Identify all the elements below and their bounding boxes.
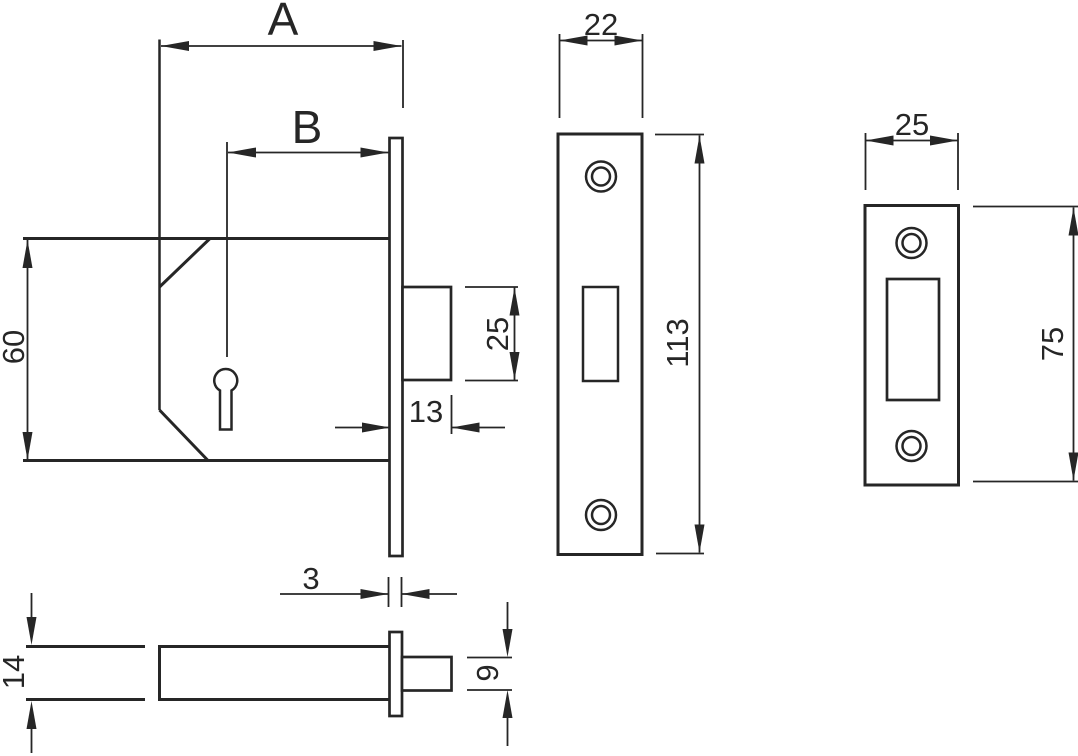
dimension-case-depth-A: A xyxy=(161,0,403,108)
arrowhead-left xyxy=(228,148,256,158)
arrowhead-left xyxy=(402,589,430,599)
arrowhead-up xyxy=(510,288,520,316)
dim-label-faceplate-thickness: 3 xyxy=(302,561,319,596)
arrowhead-left xyxy=(452,423,480,433)
dimension-backset-B: B xyxy=(227,101,389,357)
dim-label-faceplate-height: 113 xyxy=(660,318,695,367)
dimension-faceplate-thickness-3: 3 xyxy=(280,561,457,607)
dimension-strike-height-75: 75 xyxy=(973,207,1078,482)
arrowhead-left xyxy=(161,41,189,51)
arrowhead-down xyxy=(1069,453,1078,481)
side-view: A B 60 25 13 xyxy=(0,0,520,607)
arrowhead-right xyxy=(362,423,390,433)
dim-label-faceplate-width: 22 xyxy=(584,7,618,42)
faceplate-bolt-slot xyxy=(583,287,618,381)
strike-screw-hole-bottom xyxy=(897,431,927,461)
arrowhead-down xyxy=(695,525,705,553)
dimension-bolt-throw-13: 13 xyxy=(335,394,505,434)
keyhole xyxy=(214,369,237,429)
arrowhead-down xyxy=(510,352,520,380)
plan-view: 14 9 xyxy=(0,593,513,753)
dimension-case-thickness-14: 14 xyxy=(0,593,37,753)
arrowhead-right xyxy=(930,136,958,146)
arrowhead-right xyxy=(615,36,643,46)
strike-screw-hole-top xyxy=(897,228,927,258)
dim-label-case-thickness: 14 xyxy=(0,655,31,689)
arrowhead-up xyxy=(1069,208,1078,236)
faceplate-side xyxy=(390,138,403,556)
arrowhead-right xyxy=(361,148,389,158)
dimension-faceplate-height-113: 113 xyxy=(655,135,705,554)
arrowhead-down xyxy=(503,629,513,657)
arrowhead-right xyxy=(374,41,402,51)
strike-plate-view: 25 75 xyxy=(865,107,1078,485)
strike-plate-opening xyxy=(887,279,939,400)
dimension-case-height-60: 60 xyxy=(0,240,33,460)
dim-label-bolt-width: 9 xyxy=(470,664,505,681)
arrowhead-up xyxy=(23,240,33,268)
dimension-strike-width-25: 25 xyxy=(866,107,959,190)
faceplate-front-view: 22 113 xyxy=(558,7,705,555)
arrowhead-up xyxy=(27,701,37,729)
faceplate-screw-hole-bottom xyxy=(586,500,616,530)
arrowhead-right xyxy=(361,589,389,599)
mortice-lock-technical-drawing: A B 60 25 13 xyxy=(0,0,1078,756)
arrowhead-down xyxy=(23,432,33,460)
arrowhead-up xyxy=(695,136,705,164)
dim-label-strike-width: 25 xyxy=(895,107,929,142)
arrowhead-down xyxy=(27,617,37,645)
faceplate-screw-hole-top xyxy=(586,162,616,192)
bolt-plan xyxy=(402,657,452,691)
drawing-sheet: A B 60 25 13 xyxy=(0,0,1078,756)
dim-label-case-depth: A xyxy=(268,0,299,45)
dim-label-backset: B xyxy=(292,101,323,153)
arrowhead-left xyxy=(866,136,894,146)
dim-label-bolt-height: 25 xyxy=(480,317,515,351)
arrowhead-up xyxy=(503,690,513,718)
dimension-faceplate-width-22: 22 xyxy=(560,7,643,118)
lock-case-outline xyxy=(23,40,390,461)
bolt-side xyxy=(403,287,452,380)
lock-case-plan-outline xyxy=(26,645,390,701)
dimension-bolt-width-9: 9 xyxy=(467,602,513,746)
dim-label-strike-height: 75 xyxy=(1035,327,1070,361)
dim-label-bolt-throw: 13 xyxy=(409,394,443,429)
faceplate-front xyxy=(558,134,642,555)
dimension-bolt-height-25: 25 xyxy=(465,287,520,381)
dim-label-case-height: 60 xyxy=(0,330,31,364)
faceplate-plan xyxy=(390,632,403,716)
